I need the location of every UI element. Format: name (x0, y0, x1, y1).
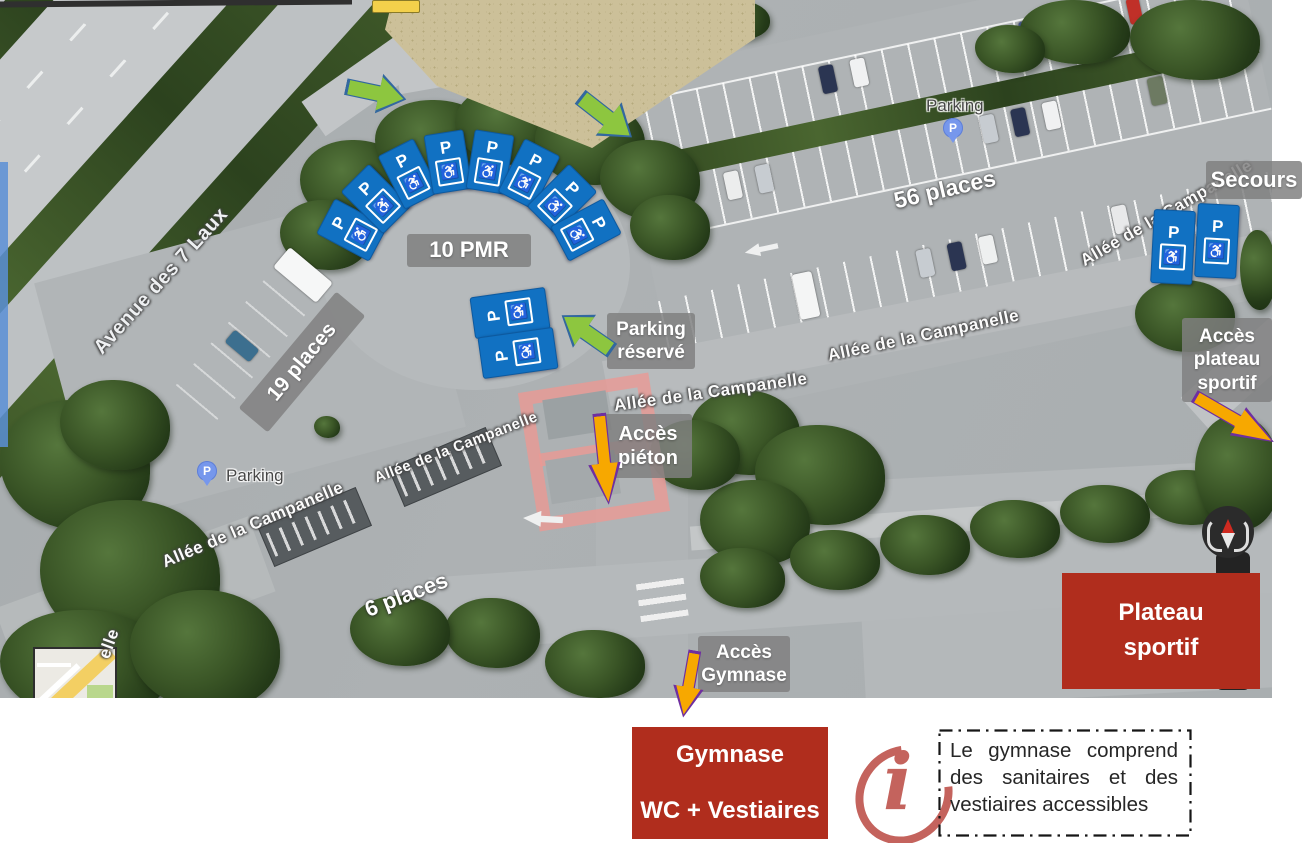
wheelchair-icon: ♿ (1159, 243, 1186, 270)
page: Avenue des 7 Laux Allée de la Campanelle… (0, 0, 1308, 843)
wheelchair-icon: ♿ (435, 157, 465, 187)
info-icon: i (853, 738, 947, 838)
banner-parking-reserve: Parking réservé (607, 313, 695, 369)
parking-poi-label: Parking (926, 96, 984, 116)
parking-pin-icon: P (197, 461, 217, 481)
parking-p-icon: P (394, 151, 412, 171)
tree (975, 25, 1045, 73)
banner-acces-gymnase: Accès Gymnase (698, 636, 790, 692)
wheelchair-icon: ♿ (512, 337, 541, 366)
parking-p-icon: P (493, 348, 511, 362)
plateau-sportif-label: Plateau sportif (1106, 596, 1216, 666)
compass-needle-north-icon (1221, 512, 1235, 535)
gymnase-subtitle: WC + Vestiaires (640, 797, 819, 825)
pmr-parking-sign: P♿ (1194, 203, 1240, 279)
minimap-green (87, 685, 113, 698)
info-note: Le gymnase comprend des sanitaires et de… (938, 729, 1192, 837)
tree (545, 630, 645, 698)
gymnase-box: Gymnase WC + Vestiaires (632, 727, 828, 839)
parking-p-icon: P (329, 214, 349, 232)
compass-rotate-left-icon (1207, 518, 1222, 552)
parking-pin-icon: P (943, 118, 963, 138)
road-marking-arrow (743, 239, 779, 259)
road-shield-badge (372, 0, 420, 13)
parking-p-icon: P (356, 179, 376, 199)
wheelchair-icon: ♿ (474, 157, 504, 187)
parking-p-icon: P (485, 138, 499, 157)
parking-poi-label: Parking (226, 466, 284, 486)
compass-needle-south-icon (1221, 533, 1235, 556)
tree (445, 598, 540, 668)
capacity-label-pmr: 10 PMR (407, 234, 531, 267)
minimap-road (37, 663, 71, 667)
plateau-sportif-box: Plateau sportif (1062, 573, 1260, 689)
crosswalk (635, 574, 688, 622)
parking-p-icon: P (1168, 224, 1180, 242)
tree (630, 195, 710, 260)
map-edge-strip (0, 162, 8, 447)
parking-p-icon: P (439, 138, 453, 157)
parking-p-icon: P (589, 214, 609, 232)
parking-p-icon: P (485, 308, 503, 322)
gymnase-title: Gymnase (676, 741, 784, 769)
bush (314, 416, 340, 438)
parking-p-icon: P (527, 151, 545, 171)
compass-control[interactable] (1202, 506, 1254, 558)
info-i-glyph: i (883, 740, 913, 826)
tree (130, 590, 280, 698)
wheelchair-icon: ♿ (1203, 237, 1230, 264)
info-note-text: Le gymnase comprend des sanitaires et de… (950, 737, 1178, 818)
banner-acces-plateau: Accès plateau sportif (1182, 318, 1272, 402)
banner-secours: Secours (1206, 161, 1302, 199)
wheelchair-icon: ♿ (504, 297, 533, 326)
parking-p-icon: P (1212, 218, 1224, 236)
parking-p-icon: P (562, 179, 582, 199)
pmr-parking-sign: P♿ (1150, 209, 1196, 285)
compass-rotate-right-icon (1234, 518, 1249, 552)
